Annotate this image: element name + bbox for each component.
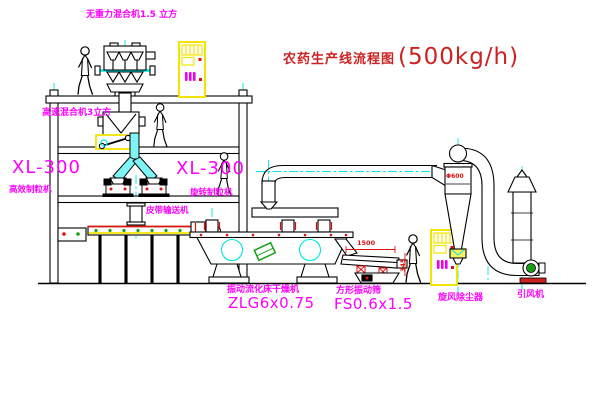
label-fan: 引风机 bbox=[517, 291, 544, 300]
control-cabinet-1 bbox=[179, 42, 205, 97]
title-chinese: 农药生产线流程图 bbox=[283, 48, 395, 67]
label-granulator-right-model: XL-300 bbox=[176, 160, 245, 178]
label-dryer-model: ZLG6x0.75 bbox=[228, 296, 315, 311]
discharge-pipe bbox=[127, 203, 145, 228]
label-granulator-left-model: XL-300 bbox=[12, 159, 81, 177]
worker-top-floor bbox=[78, 47, 93, 95]
worker-ground bbox=[406, 235, 421, 283]
fluid-bed-dryer bbox=[190, 202, 353, 283]
gravity-free-mixer bbox=[95, 43, 155, 96]
drawing-title: 农药生产线流程图 (500kg/h) bbox=[283, 44, 519, 70]
process-flow-drawing: 农药生产线流程图 (500kg/h) 无重力混合机1.5 立方 高速混合机3立方… bbox=[0, 0, 600, 403]
label-granulator-left-name: 高效制粒机 bbox=[9, 186, 52, 195]
induced-draft-fan bbox=[520, 260, 546, 283]
dim-sieve-length: 1500 bbox=[357, 240, 375, 247]
worker-second-floor bbox=[154, 104, 167, 147]
label-speed-mixer: 高速混合机3立方 bbox=[42, 109, 111, 118]
label-sieve-model: FS0.6x1.5 bbox=[334, 297, 413, 312]
dim-cyclone-diameter: Φ600 bbox=[446, 174, 464, 180]
label-gravity-mixer: 无重力混合机1.5 立方 bbox=[86, 11, 177, 20]
title-capacity: (500kg/h) bbox=[398, 44, 519, 70]
label-belt-conveyor: 皮带输送机 bbox=[146, 207, 189, 216]
label-granulator-right-name: 旋转制粒机 bbox=[190, 189, 233, 198]
exhaust-stack bbox=[508, 170, 536, 263]
label-cyclone: 旋风除尘器 bbox=[438, 294, 483, 303]
dim-sieve-side: 345 bbox=[400, 258, 407, 272]
